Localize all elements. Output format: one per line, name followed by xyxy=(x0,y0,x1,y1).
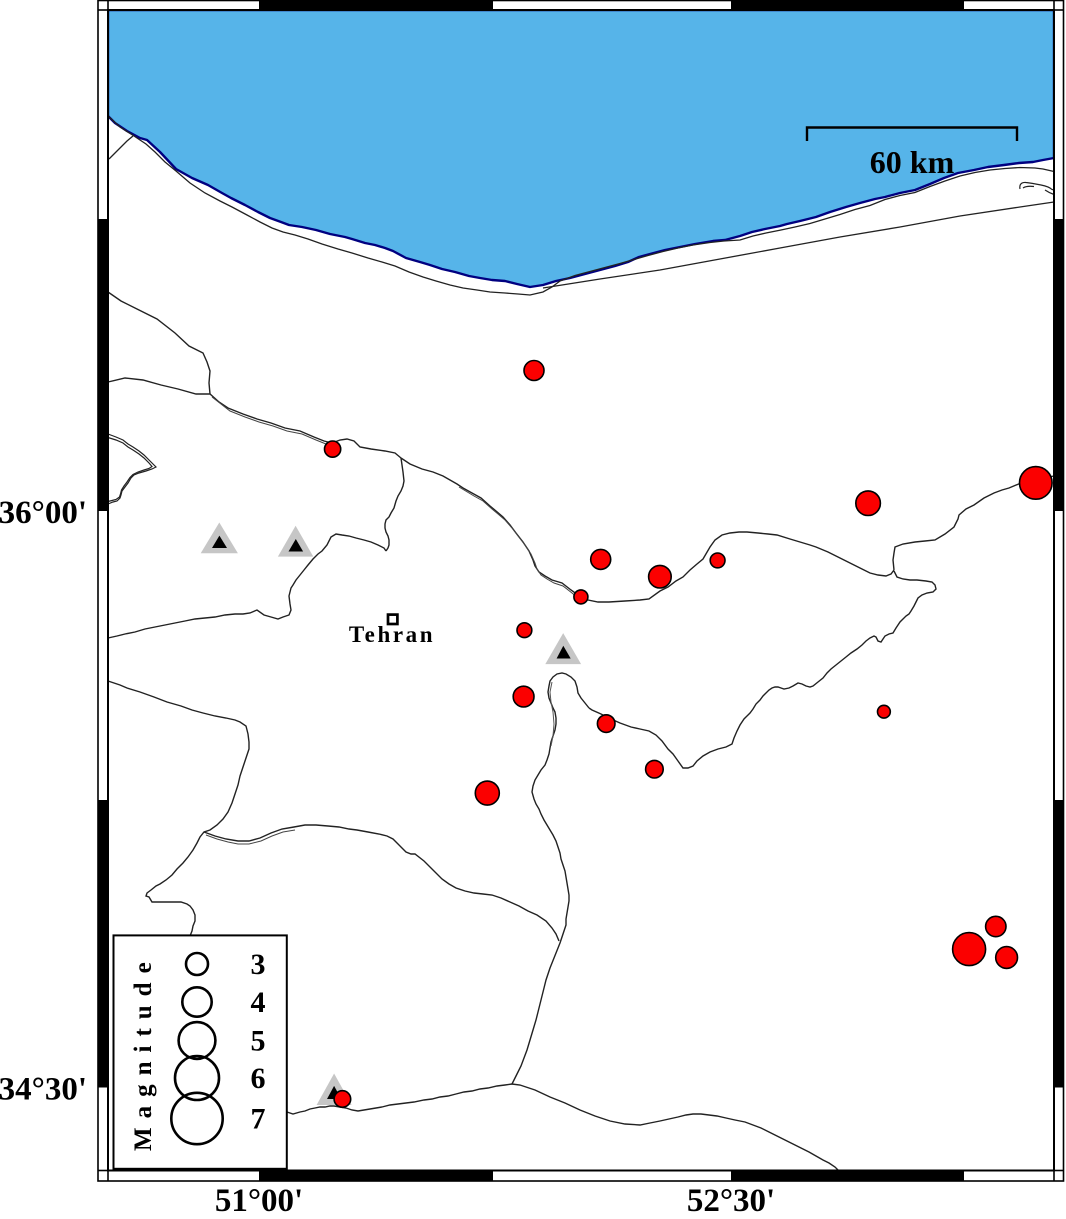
svg-text:6: 6 xyxy=(251,1062,266,1095)
svg-text:7: 7 xyxy=(251,1103,266,1136)
svg-text:4: 4 xyxy=(251,986,266,1019)
svg-text:52°30': 52°30' xyxy=(687,1183,775,1219)
svg-text:Magnitude: Magnitude xyxy=(130,953,157,1151)
svg-text:60 km: 60 km xyxy=(870,144,955,180)
svg-text:5: 5 xyxy=(251,1025,266,1058)
svg-text:36°00': 36°00' xyxy=(0,495,87,531)
svg-text:34°30': 34°30' xyxy=(0,1072,87,1108)
svg-text:Tehran: Tehran xyxy=(349,622,435,647)
svg-text:3: 3 xyxy=(251,948,266,981)
svg-text:51°00': 51°00' xyxy=(215,1183,303,1219)
